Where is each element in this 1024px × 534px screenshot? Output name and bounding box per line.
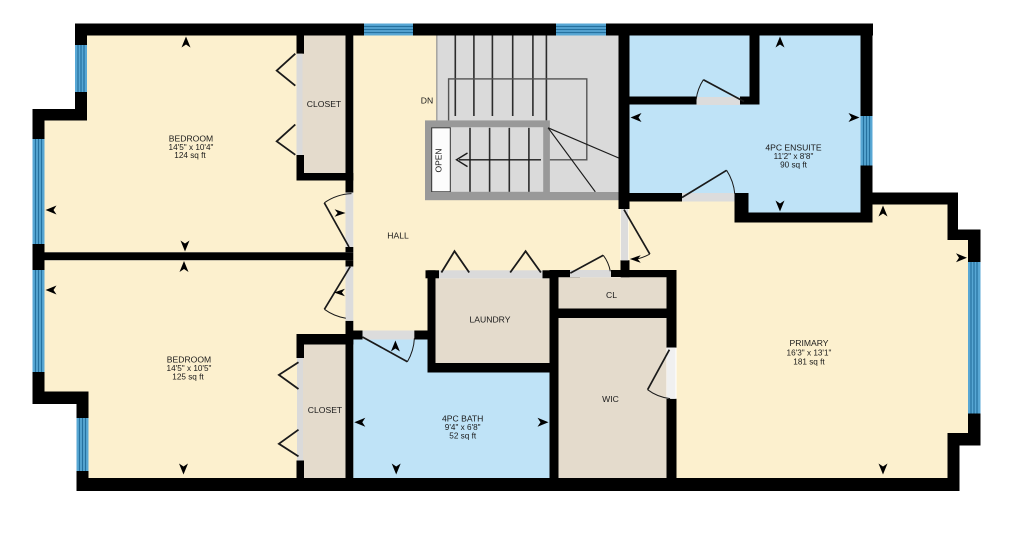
svg-text:CLOSET: CLOSET (308, 405, 343, 415)
svg-text:CL: CL (606, 290, 617, 300)
svg-text:PRIMARY: PRIMARY (790, 338, 829, 348)
svg-text:52 sq ft: 52 sq ft (449, 431, 477, 440)
svg-text:181 sq ft: 181 sq ft (793, 358, 825, 367)
svg-text:HALL: HALL (387, 231, 409, 241)
svg-text:OPEN: OPEN (434, 148, 444, 172)
svg-text:CLOSET: CLOSET (307, 99, 342, 109)
svg-text:16'3" x 13'1": 16'3" x 13'1" (787, 348, 832, 357)
svg-text:BEDROOM: BEDROOM (167, 355, 211, 365)
svg-text:125 sq ft: 125 sq ft (172, 373, 204, 382)
svg-text:90 sq ft: 90 sq ft (780, 161, 808, 170)
svg-text:4PC ENSUITE: 4PC ENSUITE (765, 142, 822, 152)
svg-text:DN: DN (421, 96, 433, 106)
svg-text:WIC: WIC (602, 394, 619, 404)
svg-text:124 sq ft: 124 sq ft (174, 151, 206, 160)
svg-text:4PC BATH: 4PC BATH (442, 414, 483, 424)
svg-text:LAUNDRY: LAUNDRY (470, 315, 511, 325)
